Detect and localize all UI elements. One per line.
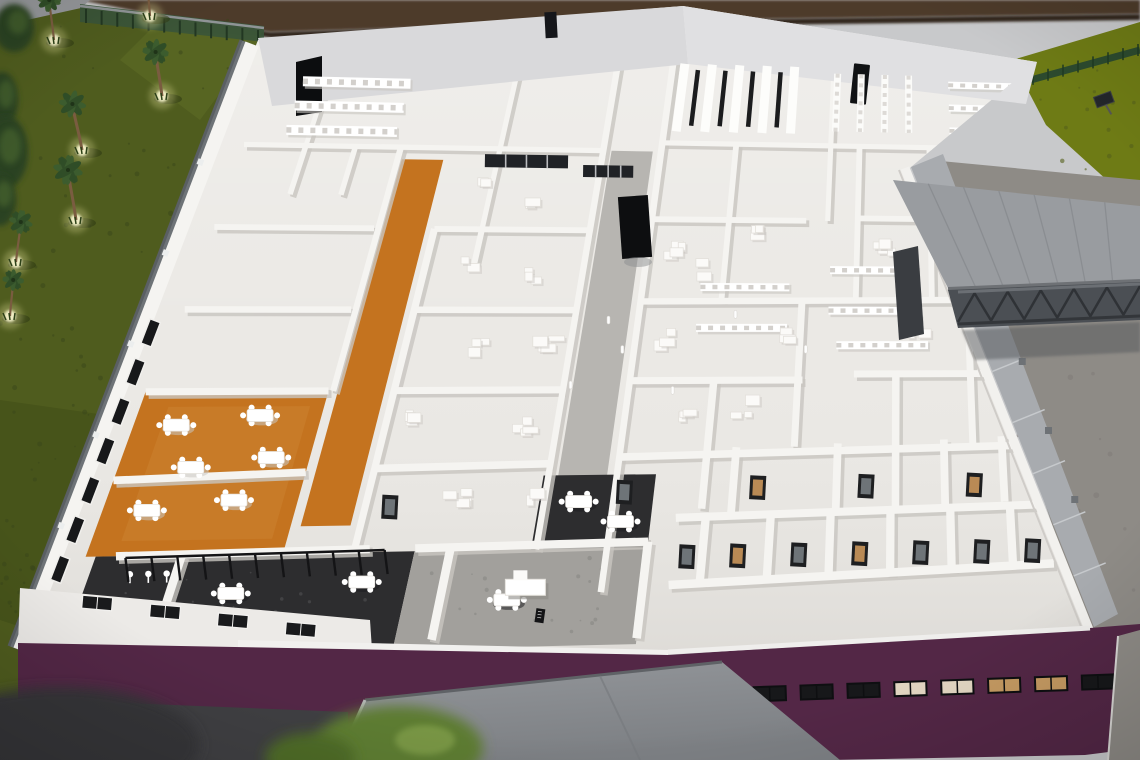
scene-canvas	[0, 0, 1140, 760]
architectural-model-photo	[0, 0, 1140, 760]
